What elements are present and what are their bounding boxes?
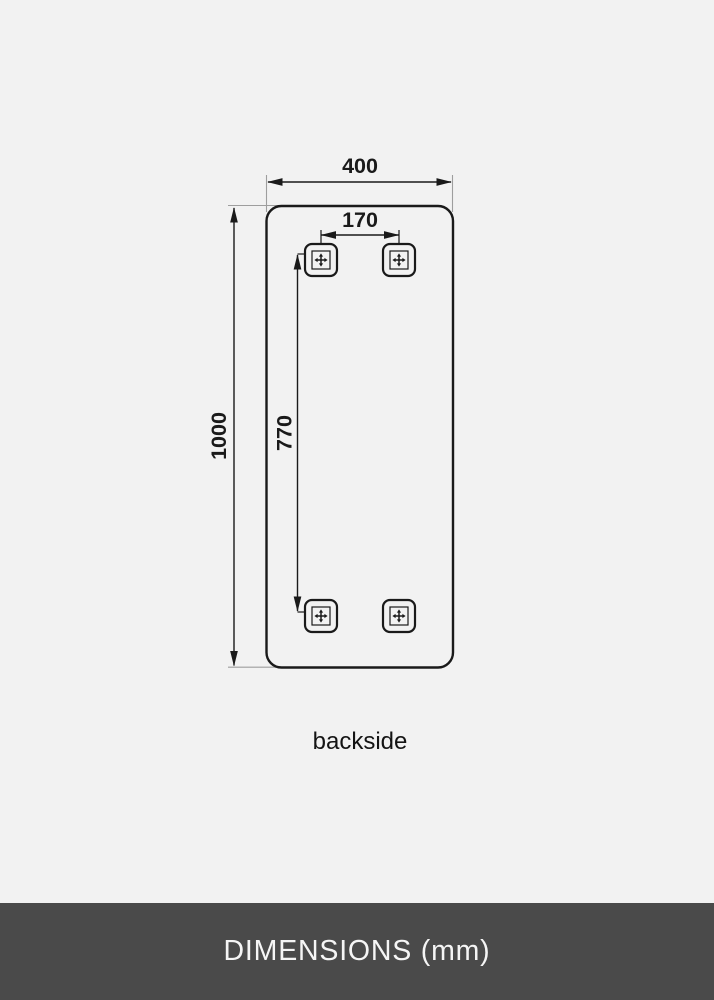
- backside-label: backside: [313, 728, 408, 755]
- spacing-h-dimension-label: 170: [342, 208, 378, 232]
- mounting-bracket-top-right: [383, 244, 415, 276]
- footer-bar: DIMENSIONS (mm): [0, 903, 714, 1000]
- spacing-v-dimension-label: 770: [273, 415, 297, 451]
- mounting-bracket-bottom-right: [383, 600, 415, 632]
- width-dimension-label: 400: [342, 154, 378, 178]
- product-dimension-page: 400 1000 170 770: [0, 0, 714, 1000]
- mounting-bracket-top-left: [305, 244, 337, 276]
- footer-title: DIMENSIONS (mm): [224, 935, 491, 968]
- mounting-bracket-bottom-left: [305, 600, 337, 632]
- height-dimension-label: 1000: [207, 412, 231, 460]
- mirror-dimension-diagram: 400 1000 170 770: [0, 0, 714, 903]
